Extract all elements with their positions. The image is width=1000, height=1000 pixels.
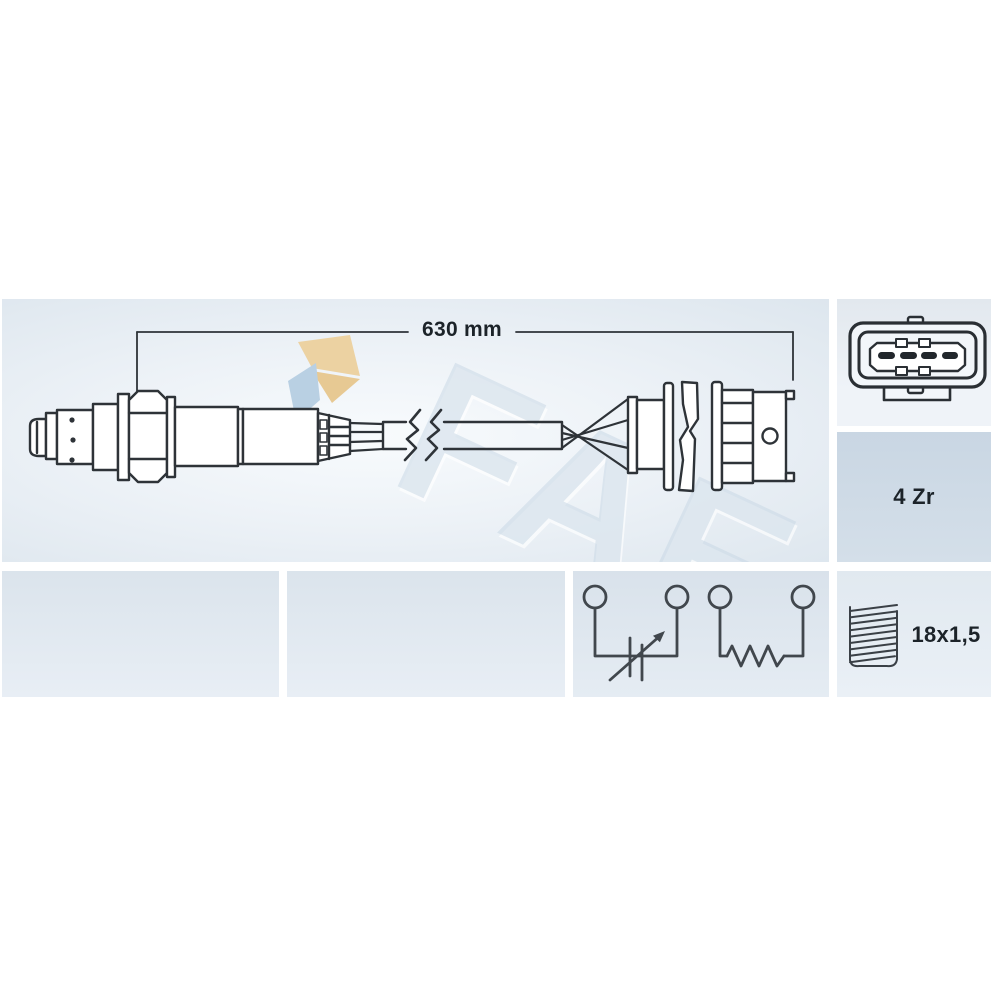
connector-face-icon: [837, 299, 991, 426]
crimp-sleeve: [318, 413, 350, 461]
terminal-circle: [709, 586, 731, 608]
lead-wires: [350, 423, 383, 451]
cable-length-label: 630 mm: [422, 318, 502, 342]
sensor-variant-label: 4 Zr: [893, 484, 935, 510]
terminal-circle: [792, 586, 814, 608]
connector-assembly: [628, 382, 794, 491]
sensor-variant-badge: 4 Zr: [837, 432, 991, 562]
thread-size-label: 18x1,5: [911, 622, 980, 648]
cable-break-icon: [405, 410, 441, 460]
zirconia-cell-circuit: [595, 608, 677, 680]
panel-thread-size: 18x1,5: [837, 571, 991, 697]
sensor-tip: [30, 404, 118, 470]
product-image: FAE: [0, 0, 1000, 1000]
empty-cell-2: [287, 571, 565, 697]
cable: [383, 410, 562, 460]
sensor-body: [175, 407, 318, 466]
heater-circuit: [720, 608, 803, 666]
panel-sensor-drawing: FAE: [2, 299, 829, 562]
empty-cell-1: [2, 571, 279, 697]
wiring-diagram: [573, 571, 829, 697]
terminal-circle: [666, 586, 688, 608]
sensor-diagram: [2, 299, 829, 562]
fanout-wires: [562, 399, 628, 470]
panel-wiring-diagram: [573, 571, 829, 697]
panel-connector-face: [837, 299, 991, 426]
hex-nut: [118, 391, 175, 482]
terminal-circle: [584, 586, 606, 608]
